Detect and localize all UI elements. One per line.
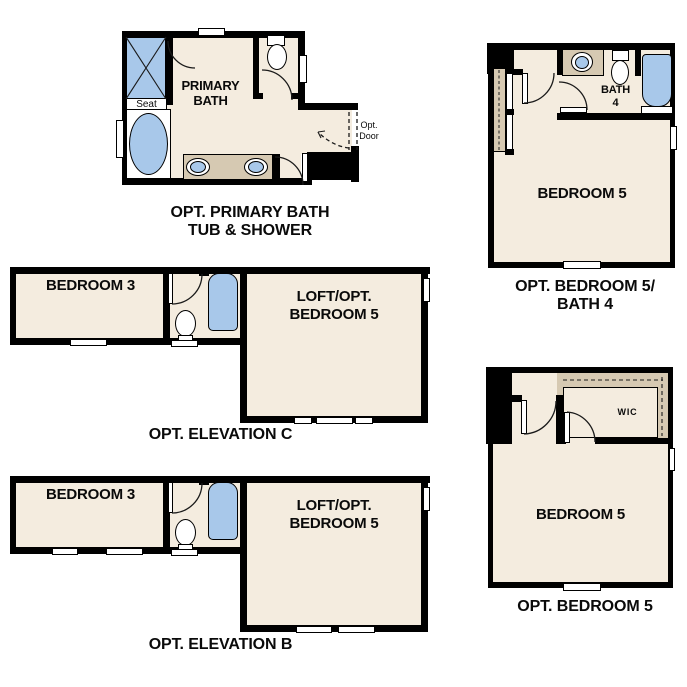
plan-opt-bedroom5-bath4: BATH 4 BEDROOM 5 OPT. BEDROOM 5/ BATH 4 — [485, 40, 685, 318]
stair-mass — [486, 367, 512, 444]
window — [670, 126, 677, 150]
room-label-wic: WIC — [595, 407, 660, 418]
tub-deck — [641, 106, 673, 114]
window — [294, 417, 312, 424]
wall — [488, 367, 673, 373]
door-leaf — [168, 273, 173, 304]
room-label-bedroom5: BEDROOM 5 — [493, 506, 668, 524]
room-label-loft: LOFT/OPT. BEDROOM 5 — [243, 497, 425, 533]
window — [52, 548, 78, 555]
wall — [668, 367, 673, 588]
room-label-bedroom5: BEDROOM 5 — [494, 185, 670, 203]
window — [338, 626, 375, 633]
door-leaf — [560, 107, 587, 113]
sink-basin — [575, 56, 589, 69]
room-label-primary-bath: PRIMARY BATH — [153, 78, 268, 108]
window — [296, 626, 332, 633]
toilet-bowl — [175, 310, 196, 337]
window — [669, 448, 675, 471]
plan-opt-primary-bath: Seat PRIMARY BATH Opt. Door — [115, 28, 385, 246]
plan-caption: OPT. BEDROOM 5/ BATH 4 — [485, 278, 685, 314]
door-leaf — [521, 400, 527, 434]
plan-opt-bedroom5-wic: WIC BEDROOM 5 OPT. BEDROOM 5 — [485, 364, 685, 622]
window — [355, 417, 373, 424]
tub-shower-fixture — [208, 273, 238, 331]
wall — [635, 45, 641, 76]
bathtub-fixture — [642, 54, 672, 107]
plan-caption: OPT. PRIMARY BATH TUB & SHOWER — [115, 204, 385, 240]
wall — [199, 267, 209, 276]
wall — [298, 103, 358, 110]
wall — [556, 395, 563, 444]
window — [116, 120, 124, 158]
room-label-bedroom3: BEDROOM 3 — [13, 277, 168, 295]
wall — [10, 338, 246, 345]
toilet-bowl — [611, 60, 629, 85]
plan-opt-elevation-c: BEDROOM 3 LOFT/OPT. BEDROOM 5 OPT. ELEVA… — [8, 264, 433, 449]
window — [106, 548, 143, 555]
wall — [557, 113, 675, 120]
window — [198, 28, 225, 36]
stair-mass — [307, 152, 359, 180]
door-leaf — [302, 153, 308, 182]
window — [299, 55, 307, 83]
plan-opt-elevation-b: BEDROOM 3 LOFT/OPT. BEDROOM 5 OPT. ELEVA… — [8, 470, 433, 660]
toilet-bowl — [175, 519, 196, 546]
plan-caption: OPT. BEDROOM 5 — [485, 598, 685, 616]
closet-door-leaf — [506, 114, 513, 150]
bathtub-fixture — [129, 113, 168, 175]
door-leaf — [564, 412, 570, 443]
room-floor — [301, 108, 352, 154]
window — [563, 261, 601, 269]
room-label-bath4: BATH 4 — [588, 84, 643, 110]
opt-door-label: Opt. Door — [353, 120, 385, 141]
window — [171, 549, 198, 556]
closet-door-leaf — [506, 73, 513, 110]
wall — [595, 438, 673, 444]
tub-shower-fixture — [208, 482, 238, 540]
wall — [240, 625, 428, 632]
wall — [199, 476, 209, 485]
door-leaf — [168, 482, 173, 513]
room-label-bedroom3: BEDROOM 3 — [13, 486, 168, 504]
door-leaf — [522, 73, 528, 104]
window — [70, 339, 107, 346]
plan-caption: OPT. ELEVATION C — [8, 426, 433, 444]
sink-basin — [190, 161, 206, 173]
closet-shelving — [493, 68, 506, 152]
window — [316, 417, 353, 424]
wall — [272, 154, 280, 180]
window — [171, 340, 198, 347]
room-label-loft: LOFT/OPT. BEDROOM 5 — [243, 288, 425, 324]
toilet-base — [178, 335, 193, 341]
toilet-bowl — [267, 44, 287, 70]
plan-caption: OPT. ELEVATION B — [8, 636, 433, 654]
floorplan-sheet: Seat PRIMARY BATH Opt. Door — [0, 0, 687, 687]
toilet-base — [178, 544, 193, 550]
sink-basin — [248, 161, 264, 173]
window — [563, 583, 601, 591]
